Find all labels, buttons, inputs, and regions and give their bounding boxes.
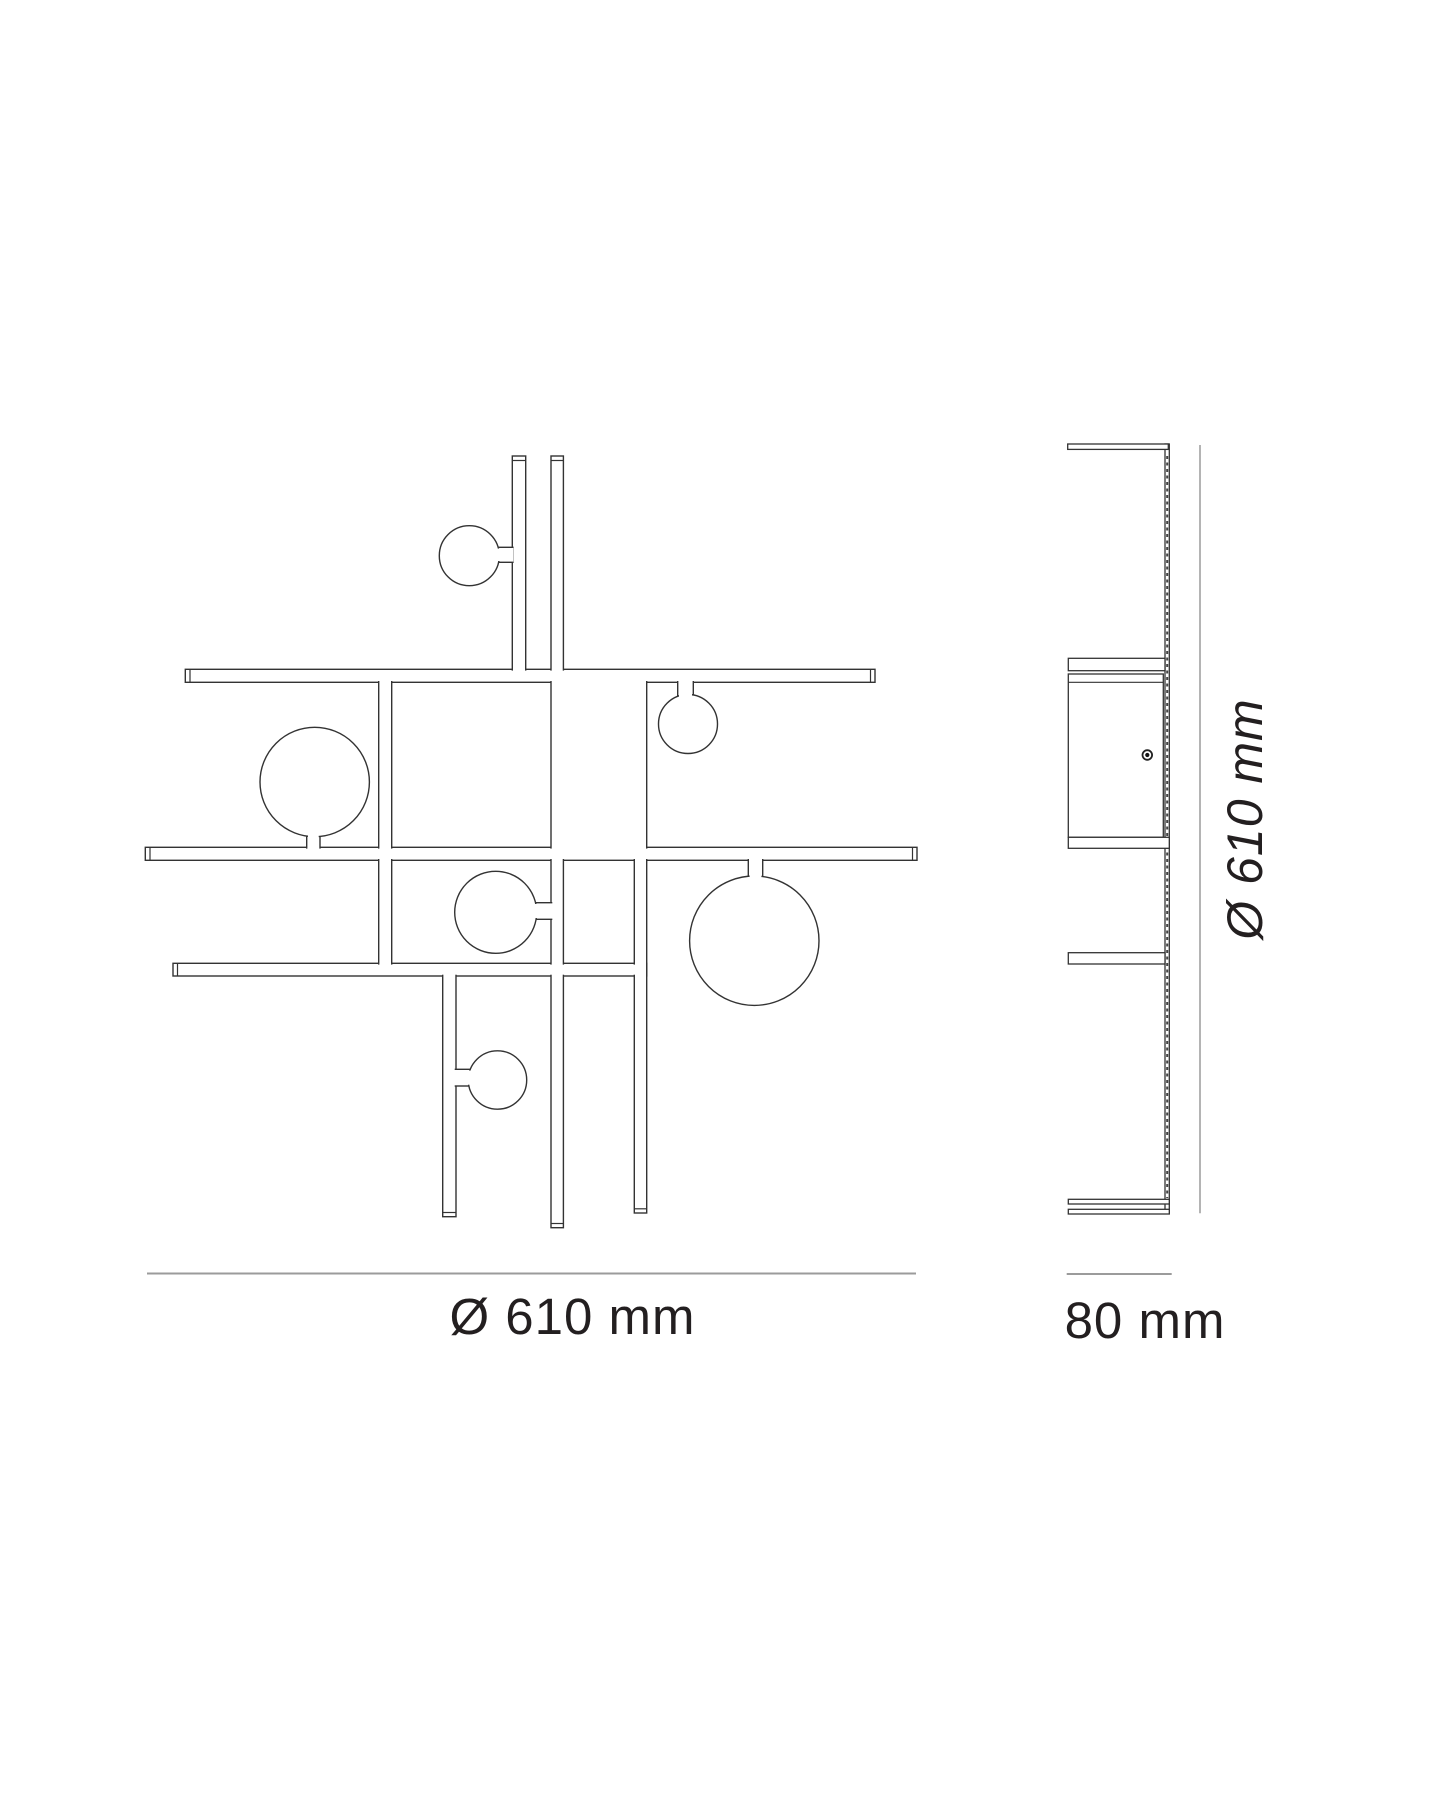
side-depth-label: 80 mm [1065, 1292, 1226, 1349]
union-fill [456, 873, 535, 952]
bottom-tube-profile [1068, 1199, 1169, 1204]
front-view [145, 456, 917, 1228]
union-fill [636, 854, 646, 1211]
union-fill [552, 457, 562, 675]
front-view-end-caps [150, 461, 913, 1224]
drawing-page: Ø 610 mm 80 mm Ø 610 mm [0, 0, 1440, 1800]
union-fill [380, 854, 390, 968]
front-view-outlines [145, 456, 917, 1228]
union-fill [470, 1052, 526, 1108]
union-fill [187, 671, 874, 681]
side-height-label: Ø 610 mm [1217, 698, 1273, 941]
front-view-union-fills [147, 457, 916, 1226]
top-tube-profile [1068, 444, 1169, 449]
middle-tube-profile [1068, 837, 1169, 848]
screw-center-dot [1145, 753, 1149, 757]
side-view [1068, 444, 1170, 1214]
union-fill [552, 675, 645, 851]
union-fill [174, 965, 645, 975]
union-fill [660, 696, 716, 752]
union-fill [514, 457, 525, 675]
bottom-tube-profile [1068, 1209, 1169, 1214]
union-fill [380, 675, 390, 851]
union-fill [444, 971, 455, 1215]
union-fill [261, 729, 368, 836]
union-fill [441, 527, 498, 584]
union-fill [147, 849, 916, 859]
union-fill [691, 877, 818, 1004]
technical-drawing: Ø 610 mm 80 mm Ø 610 mm [0, 0, 1440, 1800]
lower-tube-profile [1068, 953, 1165, 964]
upper-tube-profile [1068, 658, 1165, 670]
front-diameter-label: Ø 610 mm [449, 1288, 695, 1345]
